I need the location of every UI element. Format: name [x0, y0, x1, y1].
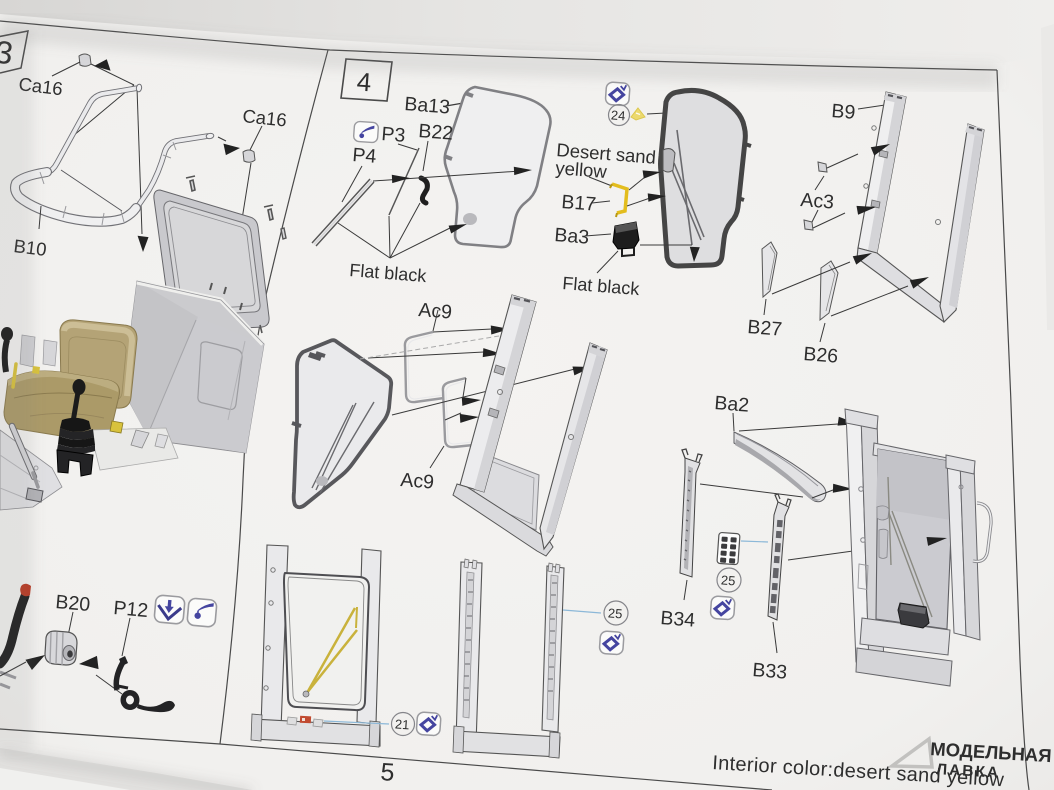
svg-text:B26: B26	[803, 343, 839, 368]
svg-text:P3: P3	[381, 123, 407, 147]
svg-text:25: 25	[720, 572, 735, 588]
svg-text:B17: B17	[561, 191, 597, 216]
svg-text:yellow: yellow	[555, 157, 609, 182]
svg-text:21: 21	[394, 716, 409, 732]
svg-text:B33: B33	[752, 659, 788, 684]
svg-text:B34: B34	[660, 607, 696, 632]
svg-text:25: 25	[607, 605, 622, 621]
svg-text:P4: P4	[352, 144, 378, 168]
svg-text:4: 4	[356, 66, 373, 97]
svg-text:Ac9: Ac9	[400, 469, 435, 494]
svg-text:Ac3: Ac3	[800, 189, 835, 214]
svg-text:Ba2: Ba2	[714, 392, 750, 417]
svg-text:24: 24	[610, 107, 625, 123]
svg-text:B22: B22	[418, 120, 454, 145]
svg-text:Ba13: Ba13	[404, 93, 451, 119]
svg-text:5: 5	[380, 758, 396, 787]
svg-text:B9: B9	[831, 100, 857, 124]
svg-text:B27: B27	[747, 316, 783, 341]
svg-text:Ba3: Ba3	[554, 224, 590, 249]
svg-text:P12: P12	[113, 597, 149, 622]
